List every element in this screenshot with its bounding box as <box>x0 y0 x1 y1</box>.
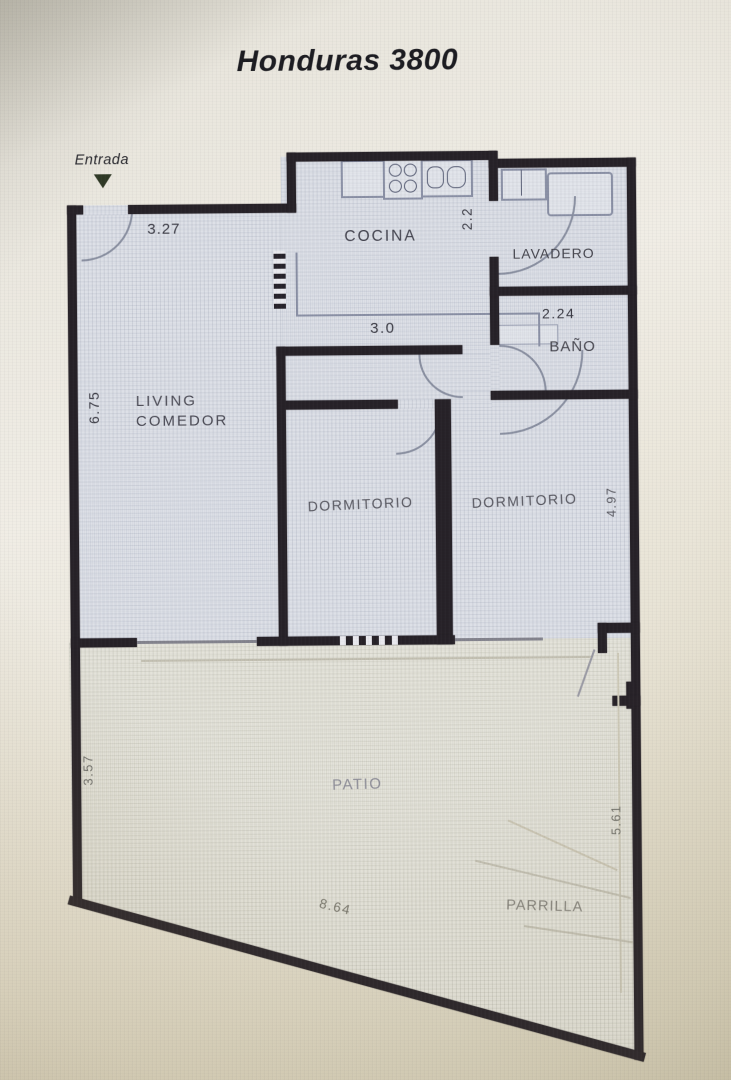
kitchen-counter <box>341 160 385 198</box>
living-label-line1: LIVING <box>136 392 197 410</box>
kitchen-low-wall-dashed <box>273 251 286 309</box>
wall-top-left <box>128 204 296 214</box>
entrance-arrow-icon <box>94 174 112 188</box>
laundry-label: LAVADERO <box>512 245 594 262</box>
dim-bath-width: 2.24 <box>542 305 575 321</box>
dim-entry-width: 3.27 <box>147 221 180 238</box>
wall-patio-bracket-top-stub <box>598 623 607 653</box>
wall-laundry-bottom <box>490 286 637 296</box>
living-label-line2: COMEDOR <box>136 412 228 430</box>
bath-door-gap <box>490 345 499 393</box>
bathroom-label: BAÑO <box>549 338 596 355</box>
floor-plan: Honduras 3800 <box>0 0 731 1080</box>
parrilla-label: PARRILLA <box>506 897 583 915</box>
dim-patio-right: 5.61 <box>609 803 623 837</box>
dim-kitchen-width: 3.0 <box>370 320 396 337</box>
kitchen-label: COCINA <box>344 228 416 247</box>
dim-bedroom-depth: 4.97 <box>605 484 619 520</box>
kitchen-hall-gap <box>462 345 490 354</box>
patio-label: PATIO <box>332 775 383 793</box>
patio-floor <box>69 638 643 1065</box>
sink-icon <box>421 159 473 197</box>
stove-icon <box>383 157 423 199</box>
wall-kitchen-bottom <box>276 345 462 356</box>
wall-mid-right <box>403 635 455 644</box>
wall-top-left-stub <box>67 205 83 214</box>
wall-bedroom-divider <box>435 399 453 644</box>
wall-top-kitchen <box>287 151 497 162</box>
wall-mid-left <box>71 638 137 648</box>
page-title: Honduras 3800 <box>0 41 713 81</box>
wall-top-right <box>489 158 636 168</box>
wall-kitchen-laundry-upper <box>489 151 498 201</box>
entrance-label: Entrada <box>75 152 129 168</box>
bedroom1-door-gap <box>396 399 437 408</box>
wall-bath-bottom <box>491 390 638 400</box>
dim-living-length: 6.75 <box>86 388 102 426</box>
floor-plan-photo: Honduras 3800 <box>0 0 731 1080</box>
wall-mid-center <box>257 636 333 646</box>
dim-patio-left: 3.57 <box>80 752 95 788</box>
wall-mid-dashed <box>333 636 403 646</box>
wall-bedroom1-top <box>286 400 398 410</box>
wall-laundry-bath-left <box>490 257 500 345</box>
dim-kitchen-depth: 2.2 <box>460 204 475 234</box>
kitchen-counter-edge-v2 <box>538 312 540 346</box>
